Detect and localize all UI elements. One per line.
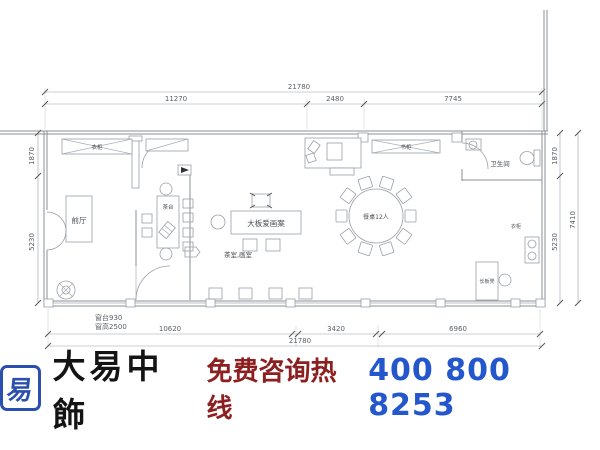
floor-plan-drawing: 21780 11270 2480 7745 <box>0 0 600 355</box>
label-tea-table: 茶台 <box>162 203 174 211</box>
chair <box>183 199 193 208</box>
hotline-label: 免费咨询热线 <box>207 351 357 425</box>
water-dispenser-icon <box>185 247 200 257</box>
stool <box>243 239 257 251</box>
dim-top-seg1: 11270 <box>165 95 187 103</box>
dim-top-seg2: 2480 <box>326 95 344 103</box>
dim-bottom-total: 21780 <box>289 337 311 345</box>
dim-left-seg2: 5230 <box>28 233 36 251</box>
door-arc-hall-bottom <box>136 266 170 300</box>
chair <box>142 214 152 223</box>
window-note-2: 窗高2500 <box>95 322 127 331</box>
side-stand <box>211 215 225 229</box>
chair <box>269 288 282 299</box>
bottom-chairs <box>209 288 312 299</box>
footer-brand-bar: 易 大易中飾 免费咨询热线 400 800 8253 <box>0 358 600 418</box>
exterior-walls <box>0 10 548 307</box>
label-tea-paint-room: 茶室,画室 <box>224 250 253 259</box>
hallway-cabinet <box>132 140 139 188</box>
window-note-1: 窗台930 <box>95 313 122 322</box>
front-hall: 前厅 <box>47 196 92 299</box>
brand-name: 大易中飾 <box>53 340 195 436</box>
dining-area: 餐桌12人 <box>336 176 416 256</box>
top-cabinets: 衣柜 书柜 <box>62 133 462 154</box>
chair <box>239 288 252 299</box>
chair <box>142 228 152 237</box>
label-front-hall: 前厅 <box>72 215 87 225</box>
plant-icon <box>57 281 75 299</box>
chair <box>183 213 193 222</box>
dim-bottom-seg2: 3420 <box>327 325 345 333</box>
label-bathroom: 卫生间 <box>490 159 510 168</box>
stool <box>160 183 172 195</box>
chair <box>209 288 222 299</box>
label-bookcase: 书柜 <box>400 143 412 151</box>
label-wardrobe: 衣柜 <box>91 143 103 151</box>
label-big-slab-table: 大板爱画案 <box>247 218 285 228</box>
dims-right: 1870 5230 7410 <box>551 130 581 306</box>
door-arc-left-top <box>47 212 66 231</box>
dim-right-total: 7410 <box>569 211 577 229</box>
dims-top: 21780 11270 2480 7745 <box>42 83 545 129</box>
stool <box>160 248 172 260</box>
brand-logo-glyph: 易 <box>5 370 35 407</box>
label-bench: 长板凳 <box>479 278 494 285</box>
brand-logo-icon: 易 <box>0 365 41 411</box>
studio-area: 大板爱画案 茶室,画室 <box>224 193 301 259</box>
dims-left: 1870 5230 <box>28 130 41 306</box>
dim-top-total: 21780 <box>288 83 310 91</box>
kitchen-unit <box>305 138 361 175</box>
stool <box>499 274 511 286</box>
label-round-table: 餐桌12人 <box>363 213 389 221</box>
tea-area: 茶台 <box>142 183 225 260</box>
stool <box>266 239 280 251</box>
dim-bottom-seg1: 10620 <box>159 325 181 333</box>
door-arc-left-bottom <box>47 231 66 250</box>
chair <box>299 288 312 299</box>
hotline-phone: 400 800 8253 <box>368 353 600 423</box>
tall-cabinet <box>525 237 539 263</box>
right-fittings: 衣柜 长板凳 <box>476 223 539 300</box>
dim-left-seg1: 1870 <box>28 147 36 165</box>
label-right-cabinet: 衣柜 <box>511 223 521 230</box>
dim-top-seg3: 7745 <box>444 95 462 103</box>
bathroom: 卫生间 <box>462 131 542 181</box>
chair <box>183 228 193 237</box>
dim-right-seg2: 5230 <box>551 233 559 251</box>
chair <box>183 242 193 251</box>
dim-right-seg1: 1870 <box>551 147 559 165</box>
dim-bottom-seg3: 6960 <box>449 325 467 333</box>
toilet-icon <box>520 150 540 166</box>
floor-plan-page: 21780 11270 2480 7745 <box>0 0 600 450</box>
